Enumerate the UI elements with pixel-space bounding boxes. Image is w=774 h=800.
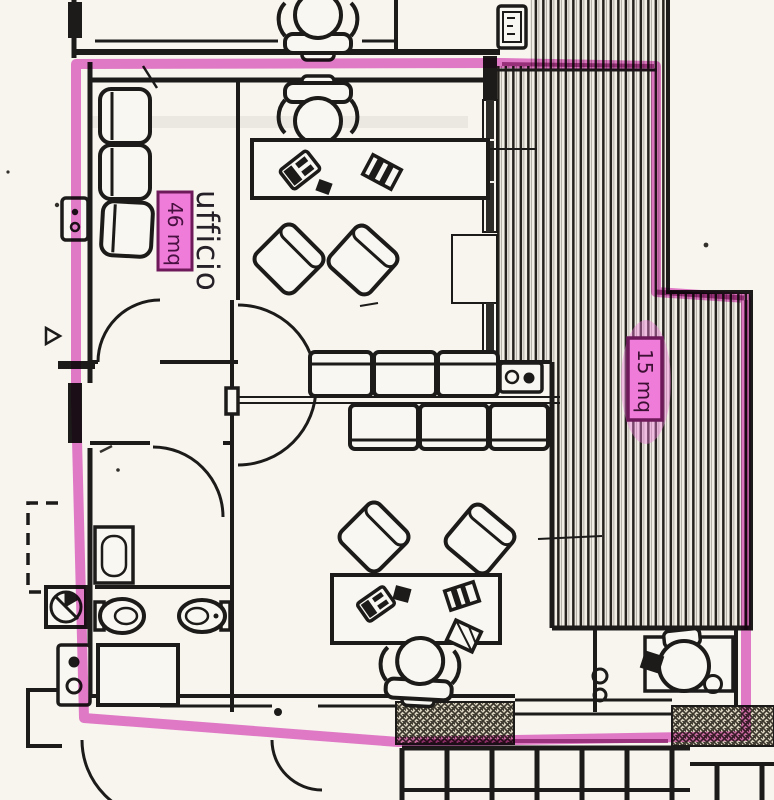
sofa-module <box>490 405 548 449</box>
meter-box-icon <box>498 6 526 48</box>
floor-plan-drawing: 46 mq ufficio 15 mq <box>0 0 774 800</box>
sink-icon <box>95 527 133 583</box>
terrace-area-label: 15 mq <box>621 320 671 444</box>
office-room-name: ufficio <box>189 190 225 292</box>
floor-plan-scan: 46 mq ufficio 15 mq <box>0 0 774 800</box>
sofa-module <box>420 405 488 449</box>
terrace-area-text: 15 mq <box>633 349 657 413</box>
hob-icon <box>500 363 542 392</box>
waiting-chair-icon <box>100 145 150 199</box>
sofa-module <box>438 352 498 396</box>
round-chair-icon <box>659 641 709 691</box>
sofa-module <box>350 405 418 449</box>
waiting-chairs <box>100 89 153 257</box>
sofa-module <box>310 352 372 396</box>
office-area-label: 46 mq <box>158 192 192 270</box>
waiting-chair-icon <box>101 201 154 258</box>
bidet-icon <box>95 599 144 633</box>
toilet-icon <box>179 600 230 632</box>
waiting-chair-icon <box>100 89 150 143</box>
office-area-text: 46 mq <box>163 202 187 266</box>
shower-tray-icon <box>98 645 178 705</box>
sofa-module <box>374 352 436 396</box>
